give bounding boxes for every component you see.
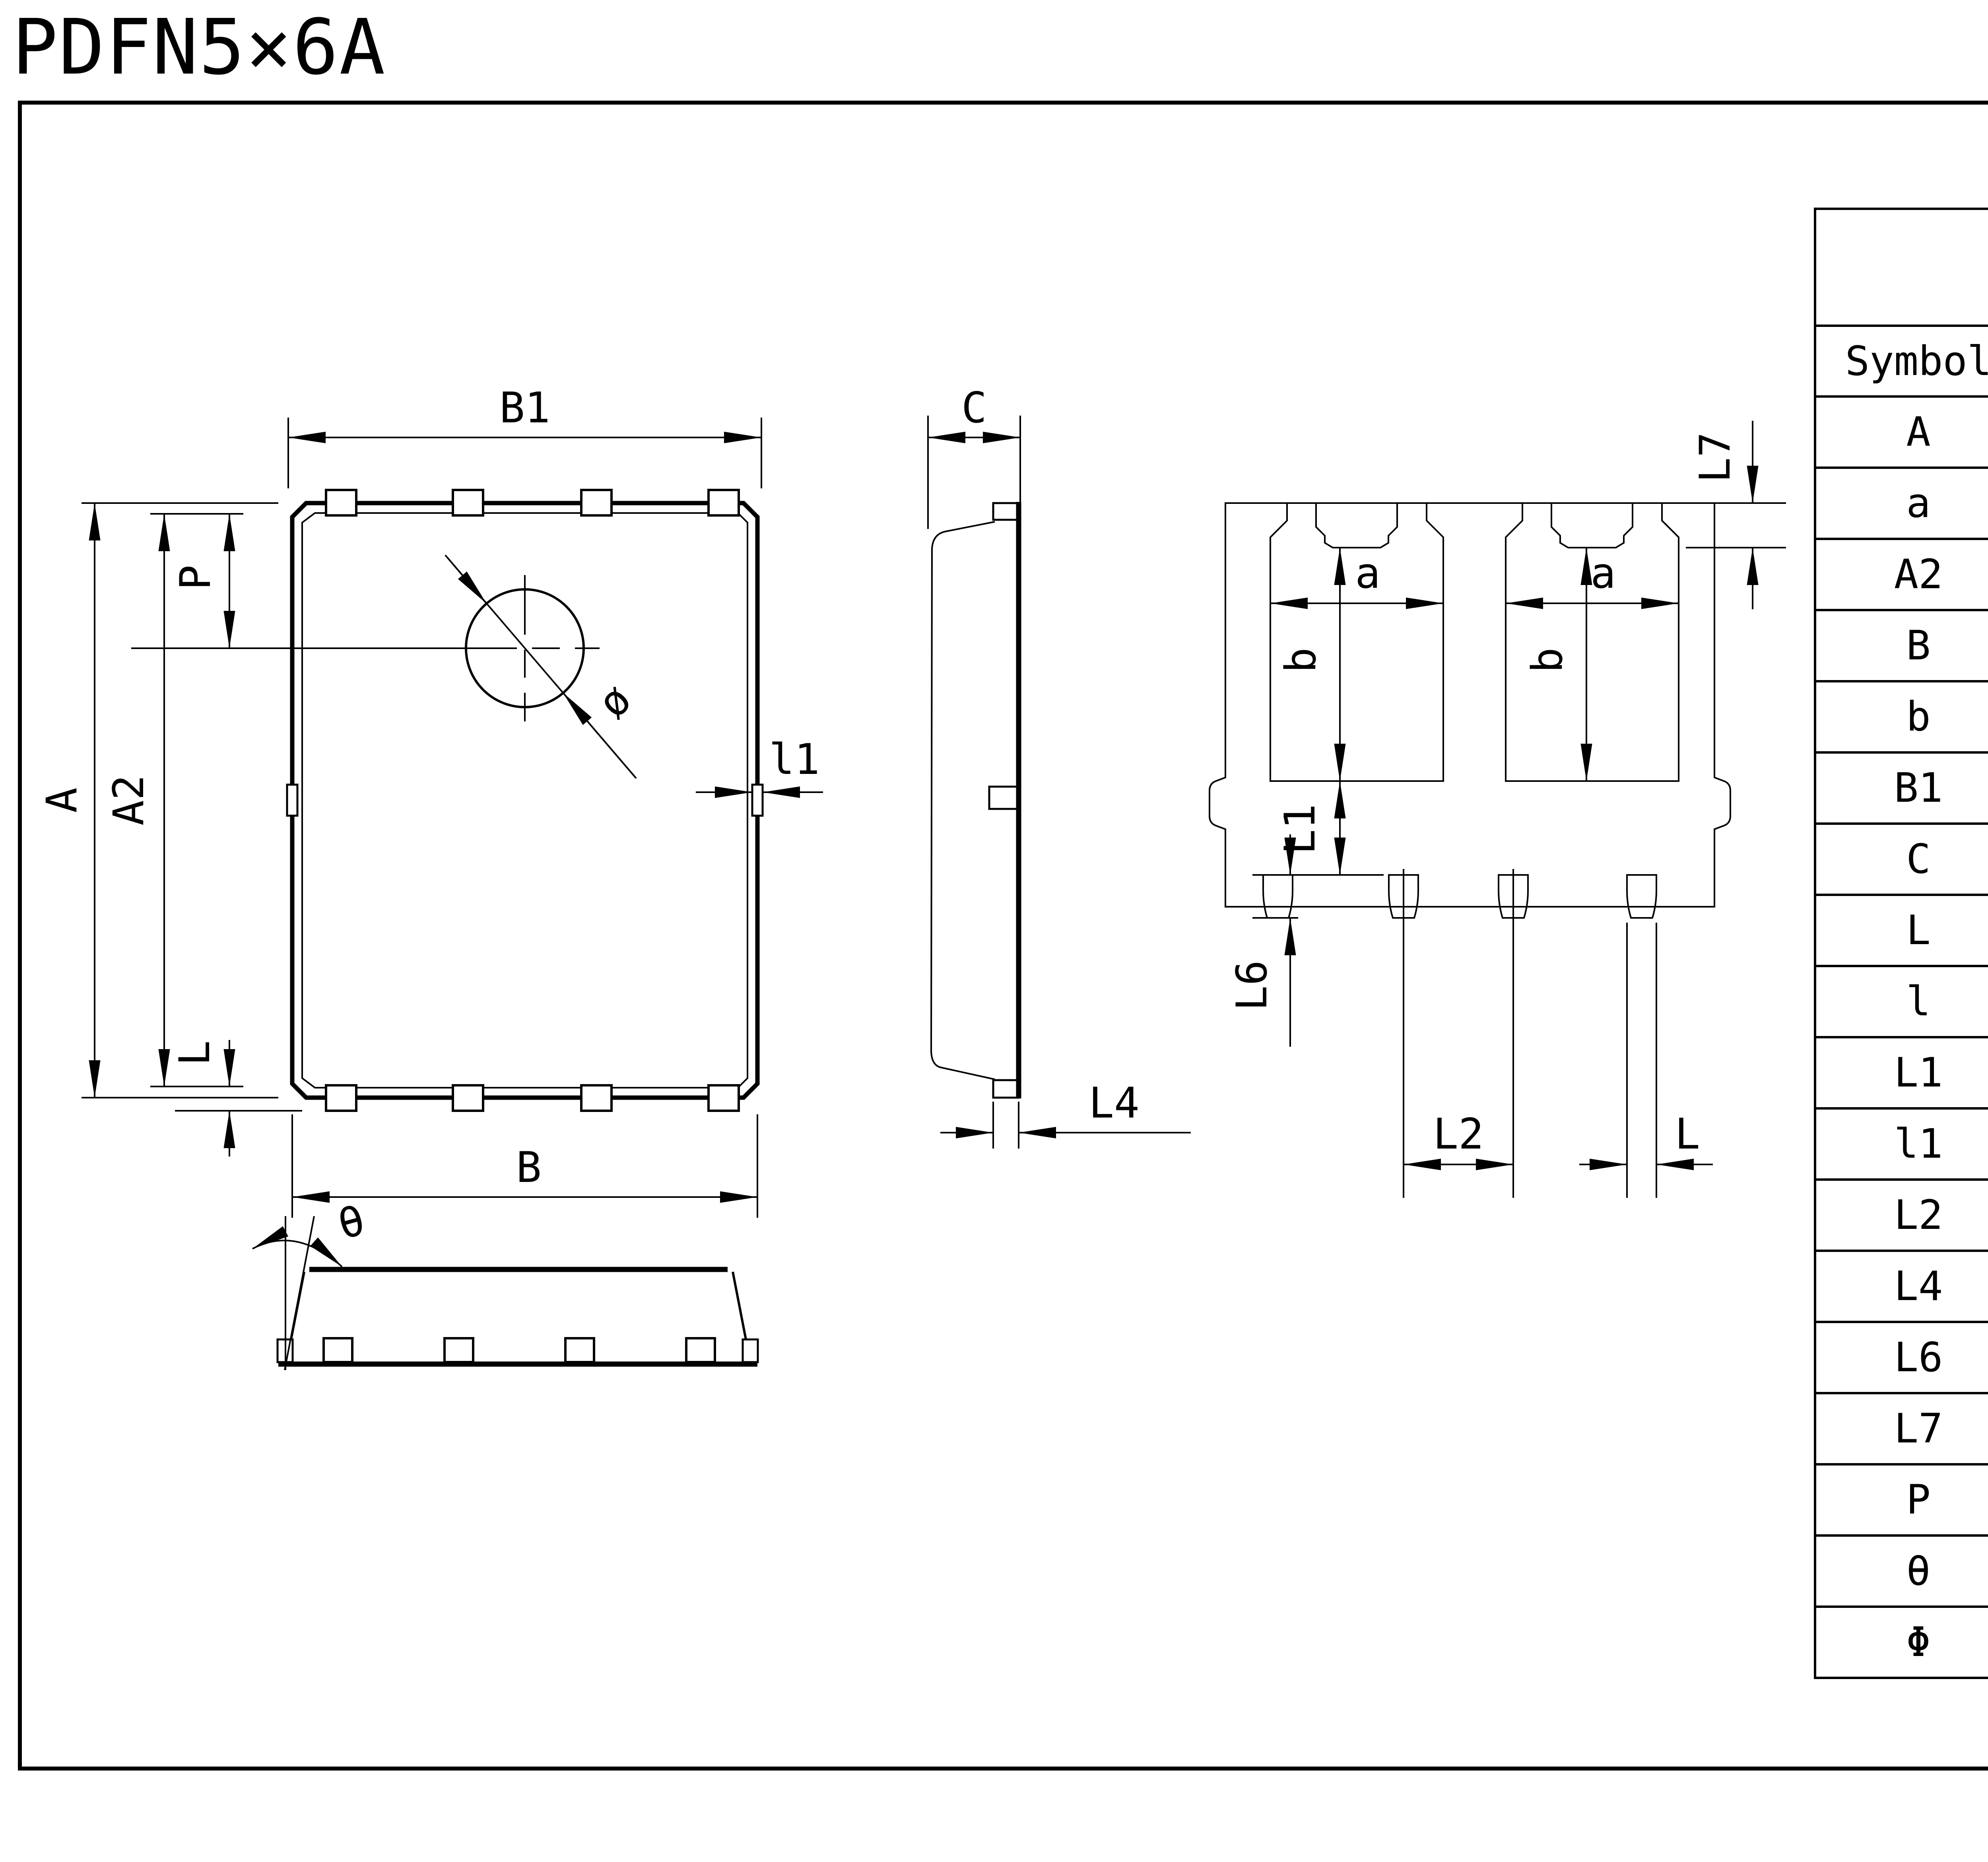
dim-label-a-left: a: [1355, 549, 1380, 598]
table-cell-symbol: B: [1815, 610, 1988, 681]
lead-stub: [743, 1339, 758, 1362]
dim-label-l2: L2: [1433, 1110, 1484, 1158]
dim-label-theta: θ: [333, 1195, 370, 1249]
pad: [709, 490, 739, 515]
table-row: L0.300.400.50: [1815, 895, 1988, 966]
dim-label-b: B: [516, 1143, 542, 1192]
dim-label-c: C: [961, 383, 987, 432]
diameter-arrow: [445, 555, 487, 604]
side-mid-tab: [989, 787, 1019, 809]
table-cell-symbol: A: [1815, 397, 1988, 468]
lead: [445, 1338, 473, 1362]
table-cell-symbol: P: [1815, 1464, 1988, 1535]
pad: [581, 490, 612, 515]
lead: [565, 1338, 594, 1362]
side-tab-right: [752, 785, 763, 816]
side-body-outline: [931, 522, 995, 1079]
thermal-pad-left: [1270, 503, 1443, 781]
table-cell-symbol: b: [1815, 681, 1988, 752]
col-header-symbol: Symbol: [1815, 326, 1988, 397]
dim-label-p: P: [171, 565, 220, 590]
table-title-row: Dimensions In Millimeters: [1815, 209, 1988, 326]
dim-label-l1: L1: [1276, 804, 1324, 855]
side-view: C L4: [928, 383, 1191, 1149]
dim-label-diameter: ø: [588, 675, 641, 727]
top-view: ø B1 A A2 P L B l1: [37, 383, 823, 1218]
table-row: L60.510.610.71: [1815, 1322, 1988, 1393]
front-view: θ: [252, 1195, 758, 1370]
table-cell-symbol: A2: [1815, 539, 1988, 610]
table-cell-symbol: L6: [1815, 1322, 1988, 1393]
dim-label-l: L: [170, 1040, 219, 1066]
pad: [453, 1085, 483, 1111]
front-lead-pads: [278, 1338, 758, 1362]
pad: [453, 490, 483, 515]
bottom-lead-pads: [1263, 875, 1656, 918]
table-row: θ8°10°12°: [1815, 1535, 1988, 1607]
table-row: a1.6051.7051.805: [1815, 468, 1988, 539]
pad: [581, 1085, 612, 1111]
table-row: B14.804.905.00: [1815, 752, 1988, 824]
table-cell-symbol: l: [1815, 966, 1988, 1037]
bottom-view: a a b b L1 L6 L2 L L7: [1209, 421, 1786, 1198]
table-cell-symbol: L4: [1815, 1251, 1988, 1322]
table-row: L11.10––: [1815, 1037, 1988, 1108]
table-row: C0.900.951.00: [1815, 824, 1988, 895]
table-cell-symbol: l1: [1815, 1108, 1988, 1180]
table-cell-symbol: a: [1815, 468, 1988, 539]
table-row: l1––0.10: [1815, 1108, 1988, 1180]
dim-label-a2: A2: [104, 775, 153, 826]
lead: [324, 1338, 352, 1362]
table-cell-symbol: L: [1815, 895, 1988, 966]
pad: [326, 490, 356, 515]
table-cell-symbol: C: [1815, 824, 1988, 895]
dim-label-l1-small: l1: [769, 735, 820, 784]
dim-label-b-left: b: [1276, 647, 1325, 673]
dim-label-b-right: b: [1523, 647, 1572, 673]
side-top-lead: [993, 503, 1019, 520]
table-row: L70.450.550.65: [1815, 1393, 1988, 1464]
dim-label-a: A: [37, 787, 86, 813]
table-cell-symbol: B1: [1815, 752, 1988, 824]
dim-label-l6: L6: [1227, 960, 1276, 1011]
dim-label-l-bottom: L: [1675, 1110, 1700, 1158]
dim-label-b1: B1: [499, 383, 550, 432]
table-row: P1.151.30145: [1815, 1464, 1988, 1535]
pad: [326, 1085, 356, 1111]
table-row: B4.905.005.10: [1815, 610, 1988, 681]
table-cell-symbol: Φ: [1815, 1607, 1988, 1678]
thermal-pad-right: [1506, 503, 1679, 781]
dimension-table-head: Dimensions In Millimeters Symbol MIN TYP…: [1815, 209, 1988, 397]
table-cell-symbol: L7: [1815, 1393, 1988, 1464]
side-bottom-lead: [993, 1080, 1019, 1098]
table-row: L40.210.260.34: [1815, 1251, 1988, 1322]
pad: [709, 1085, 739, 1111]
package-drawing: ø B1 A A2 P L B l1: [0, 0, 1988, 1854]
side-tab-left: [287, 785, 297, 816]
angle-arc: [252, 1240, 342, 1267]
lead: [686, 1338, 715, 1362]
dimension-table-body: A5.906.006.10a1.6051.7051.805A25.705.755…: [1815, 397, 1988, 1678]
table-title: Dimensions In Millimeters: [1815, 209, 1988, 326]
dim-label-a-right: a: [1590, 549, 1616, 598]
dim-label-l4: L4: [1089, 1079, 1140, 1127]
dim-label-l7: L7: [1691, 432, 1739, 483]
dimension-table: Dimensions In Millimeters Symbol MIN TYP…: [1814, 208, 1988, 1679]
table-cell-symbol: L2: [1815, 1180, 1988, 1251]
table-row: l0.060.130.20: [1815, 966, 1988, 1037]
table-row: b3.3753.4753.575: [1815, 681, 1988, 752]
angle-reference-slant: [285, 1216, 314, 1370]
table-header-row: Symbol MIN TYP MAX: [1815, 326, 1988, 397]
table-cell-symbol: θ: [1815, 1535, 1988, 1607]
table-row: L21.171.271.37: [1815, 1180, 1988, 1251]
lead-pad: [1627, 875, 1656, 918]
table-row: A5.906.006.10: [1815, 397, 1988, 468]
table-row: A25.705.755.80: [1815, 539, 1988, 610]
table-row: Φ1.101.201.30: [1815, 1607, 1988, 1678]
lead-pad: [1263, 875, 1293, 918]
table-cell-symbol: L1: [1815, 1037, 1988, 1108]
